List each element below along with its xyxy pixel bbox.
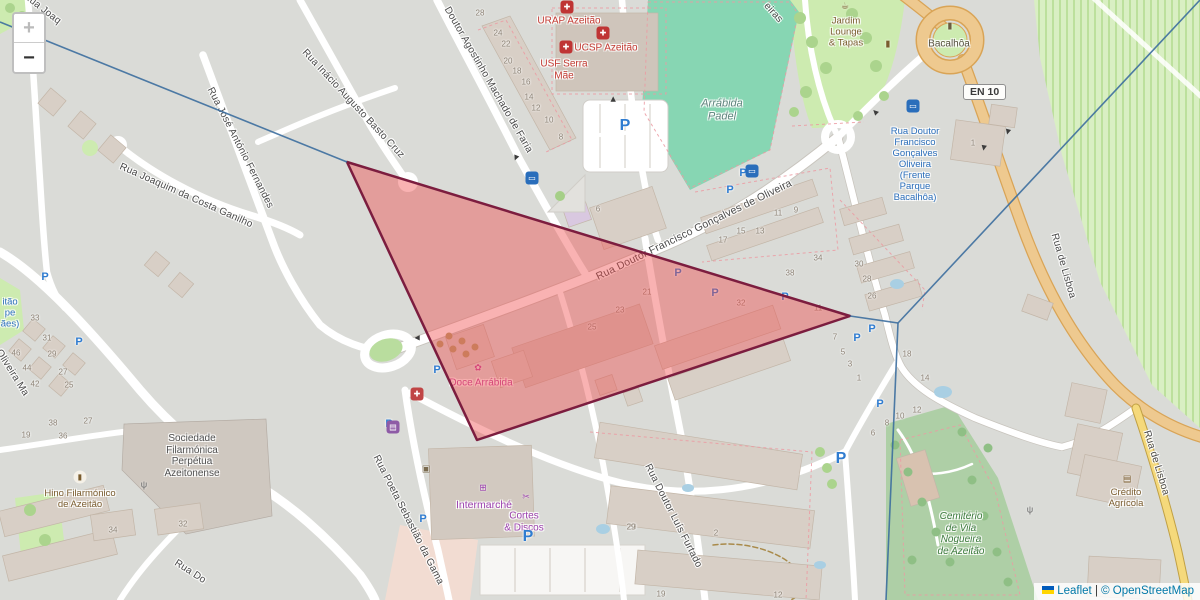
zoom-out-button[interactable]: −: [14, 43, 44, 72]
map-canvas[interactable]: EN 10 Rua JoaqRua José António Fernandes…: [0, 0, 1200, 600]
route-line[interactable]: [0, 22, 347, 162]
zoom-in-button[interactable]: +: [14, 14, 44, 43]
attribution-bar: Leaflet | © OpenStreetMap: [1034, 583, 1200, 600]
route-line[interactable]: [850, 316, 898, 323]
openstreetmap-link[interactable]: © OpenStreetMap: [1101, 585, 1194, 597]
ukraine-flag-icon: [1042, 586, 1054, 594]
selection-polygon[interactable]: [347, 162, 850, 440]
route-line[interactable]: [886, 323, 898, 600]
zoom-control: + −: [12, 12, 46, 74]
attribution-separator: |: [1092, 585, 1101, 597]
route-line[interactable]: [898, 0, 1200, 323]
leaflet-link[interactable]: Leaflet: [1057, 585, 1092, 597]
vector-overlay: [0, 0, 1200, 600]
